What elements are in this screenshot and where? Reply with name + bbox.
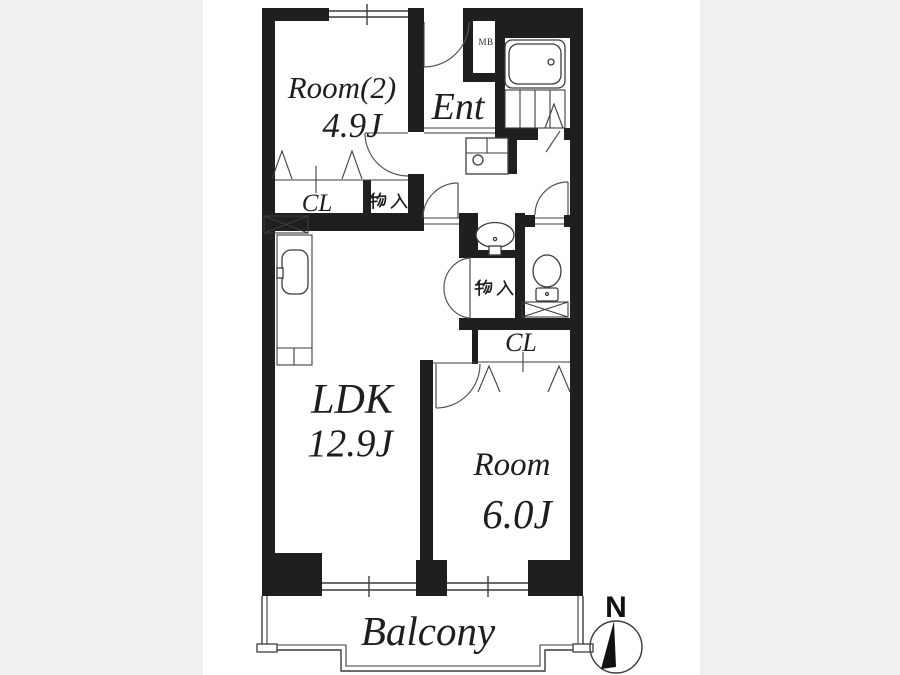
compass-north-label: N	[605, 591, 627, 624]
bedroom-door	[433, 363, 480, 408]
bedroom-closet-doors	[478, 352, 570, 392]
room2-storage-label	[369, 193, 406, 208]
entrance-door	[424, 22, 469, 67]
washer-pan-icon	[466, 138, 508, 174]
floor-hatch	[522, 302, 568, 317]
compass-needle	[601, 621, 616, 669]
balcony-label: Balcony	[361, 608, 496, 654]
entrance-step	[424, 128, 495, 133]
room2-closet-label: CL	[302, 190, 333, 217]
room2-area-label: 4.9J	[322, 106, 383, 145]
bathtub-icon	[505, 40, 565, 88]
room2-label: Room(2)	[287, 70, 396, 105]
toilet-icon	[533, 255, 561, 301]
room2-closet-doors	[272, 151, 408, 193]
bedroom-label: Room	[473, 447, 551, 483]
toilet-door	[535, 182, 568, 224]
entrance-label: Ent	[431, 86, 486, 128]
ldk-area-label: 12.9J	[307, 422, 394, 465]
compass: N	[590, 591, 642, 673]
bedroom-area-label: 6.0J	[482, 491, 553, 537]
floor-plan-drawing: N Room(2) 4.9J Ent MB CL LDK 12.9J Room …	[0, 0, 900, 675]
hall-ldk-door	[423, 183, 459, 224]
meter-box-label: MB	[478, 37, 493, 47]
floor-plan-page: N Room(2) 4.9J Ent MB CL LDK 12.9J Room …	[0, 0, 900, 675]
ldk-label: LDK	[310, 377, 395, 423]
bedroom-closet-label: CL	[505, 328, 537, 357]
kitchen-counter-icon	[277, 235, 312, 365]
hall-storage-label	[475, 280, 512, 295]
hall-storage-folding-door	[444, 258, 470, 318]
